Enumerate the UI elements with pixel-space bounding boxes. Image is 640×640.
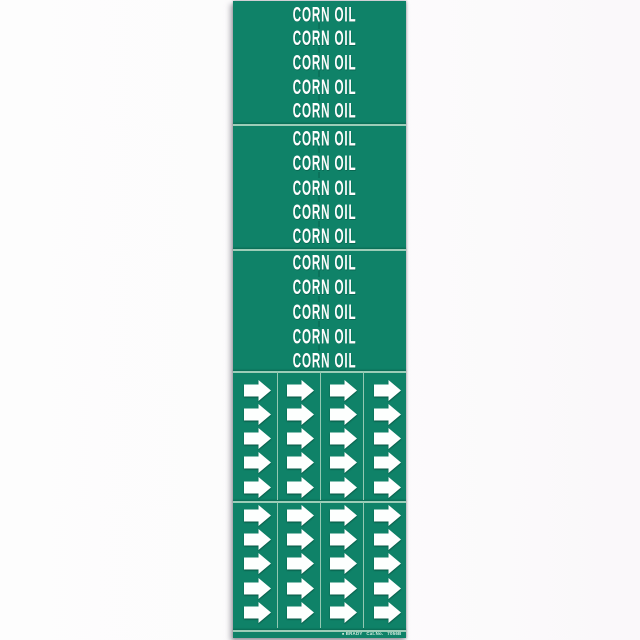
svg-text:CORN OIL: CORN OIL: [293, 127, 357, 150]
svg-text:CORN OIL: CORN OIL: [293, 3, 357, 26]
svg-text:CORN OIL: CORN OIL: [293, 301, 357, 324]
svg-text:CORN OIL: CORN OIL: [293, 225, 357, 247]
svg-text:CORN OIL: CORN OIL: [293, 251, 357, 274]
svg-text:CORN OIL: CORN OIL: [293, 27, 357, 50]
svg-text:● BRADY Cat.No. 7056B: ● BRADY Cat.No. 7056B: [342, 631, 402, 636]
svg-text:CORN OIL: CORN OIL: [293, 176, 357, 199]
svg-text:CORN OIL: CORN OIL: [293, 51, 357, 74]
svg-text:CORN OIL: CORN OIL: [293, 276, 357, 299]
svg-text:CORN OIL: CORN OIL: [293, 75, 357, 98]
svg-text:CORN OIL: CORN OIL: [293, 152, 357, 175]
svg-text:CORN OIL: CORN OIL: [293, 201, 357, 224]
svg-text:CORN OIL: CORN OIL: [293, 325, 357, 348]
svg-text:CORN OIL: CORN OIL: [293, 99, 357, 122]
svg-text:CORN OIL: CORN OIL: [293, 349, 357, 370]
